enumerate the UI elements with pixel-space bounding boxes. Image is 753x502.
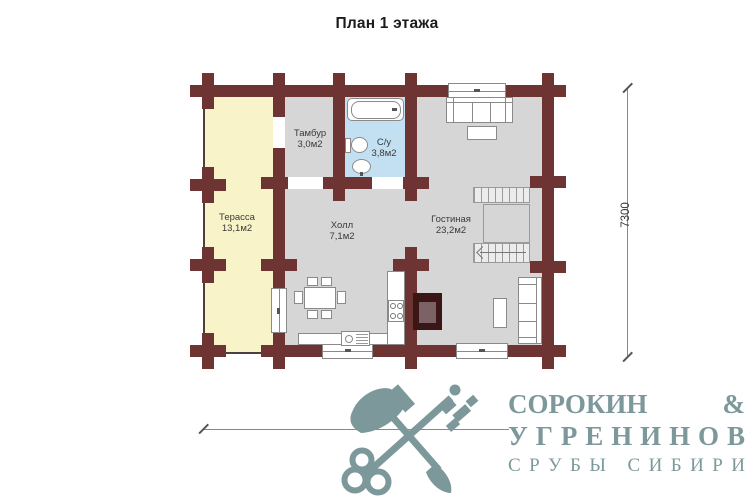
wall-right: [542, 85, 554, 357]
stairs-landing: [483, 204, 530, 243]
log-crossing: [405, 165, 417, 201]
chair-icon: [307, 310, 318, 319]
sofa-top-icon: [446, 97, 513, 123]
room-area: 13,1м2: [202, 223, 272, 234]
logo-tagline: СРУБЫ СИБИРИ: [508, 456, 745, 476]
room-area: 3,8м2: [354, 148, 414, 159]
chair-icon: [294, 291, 303, 304]
chair-icon: [321, 277, 332, 286]
room-label-hall: Холл 7,1м2: [312, 220, 372, 242]
stove-icon: [388, 300, 404, 322]
sofa-right-icon: [518, 277, 542, 344]
sofa-armrest: [519, 278, 536, 285]
sofa-cushion-line: [472, 103, 473, 122]
window-symbol-hall-terrace: [271, 288, 287, 333]
chair-icon: [337, 291, 346, 304]
log-crossing: [273, 247, 285, 283]
log-crossing: [202, 73, 214, 109]
logo-name-bottom: УГРЕНИНОВ: [508, 423, 745, 449]
log-crossing: [273, 165, 285, 201]
room-name: Терасса: [202, 212, 272, 223]
door-opening-bathroom: [372, 177, 403, 189]
log-crossing: [333, 73, 345, 109]
sofa-cushion-line: [519, 303, 536, 304]
room-area: 23,2м2: [416, 225, 486, 236]
room-name: Холл: [312, 220, 372, 231]
sofa-armrest: [519, 337, 536, 344]
bathtub-drain: [392, 108, 397, 111]
log-crossing: [202, 167, 214, 203]
log-crossing: [333, 165, 345, 201]
log-crossing: [405, 247, 417, 283]
sofa-backrest: [536, 278, 542, 343]
dimension-value-vertical: 7300: [620, 193, 634, 237]
sink-tap: [360, 172, 363, 176]
log-crossing: [542, 164, 554, 200]
kitchen-sink-bowl: [345, 335, 353, 343]
door-opening-tambur-hall: [288, 177, 323, 189]
log-crossing: [542, 73, 554, 109]
sofa-cushion-line: [490, 103, 491, 122]
log-crossing: [405, 333, 417, 369]
chair-icon: [321, 310, 332, 319]
room-area: 7,1м2: [312, 231, 372, 242]
sofa-backrest: [447, 98, 512, 103]
logo-ampersand: &: [723, 391, 746, 417]
log-crossing: [273, 333, 285, 369]
room-label-living: Гостиная 23,2м2: [416, 214, 486, 236]
log-crossing: [202, 333, 214, 369]
room-name: С/у: [354, 137, 414, 148]
logo-axe-key-icon: [341, 376, 489, 502]
room-name: Гостиная: [416, 214, 486, 225]
sofa-armrest: [505, 98, 512, 122]
coffee-table-icon: [467, 126, 497, 140]
room-label-terrace: Терасса 13,1м2: [202, 212, 272, 234]
room-label-bathroom: С/у 3,8м2: [354, 137, 414, 159]
wall-top: [203, 85, 563, 97]
chair-icon: [307, 277, 318, 286]
logo-text: СОРОКИН & УГРЕНИНОВ СРУБЫ СИБИРИ: [508, 391, 745, 476]
dining-table-icon: [304, 287, 336, 309]
window-symbol-bottom-living: [456, 343, 508, 359]
log-crossing: [273, 73, 285, 109]
kitchen-sink-icon: [341, 331, 370, 346]
room-area: 3,0м2: [280, 139, 340, 150]
floor-plan-page: План 1 этажа: [0, 0, 753, 502]
fireplace-hearth: [419, 302, 436, 323]
side-table-icon: [493, 298, 507, 328]
stairs-upper-flight: [473, 187, 530, 203]
room-name: Тамбур: [280, 128, 340, 139]
page-title: План 1 этажа: [187, 15, 587, 33]
window-symbol-top: [448, 83, 506, 98]
logo-name-top-word: СОРОКИН: [508, 391, 647, 417]
room-label-tambur: Тамбур 3,0м2: [280, 128, 340, 150]
sofa-cushion-line: [519, 321, 536, 322]
logo-name-top: СОРОКИН &: [508, 391, 745, 417]
bathtub-icon: [347, 98, 404, 121]
kitchen-sink-drainer: [356, 334, 368, 344]
log-crossing: [202, 247, 214, 283]
log-crossing: [542, 333, 554, 369]
sofa-armrest: [447, 98, 454, 122]
log-crossing: [542, 249, 554, 285]
log-crossing: [405, 73, 417, 109]
